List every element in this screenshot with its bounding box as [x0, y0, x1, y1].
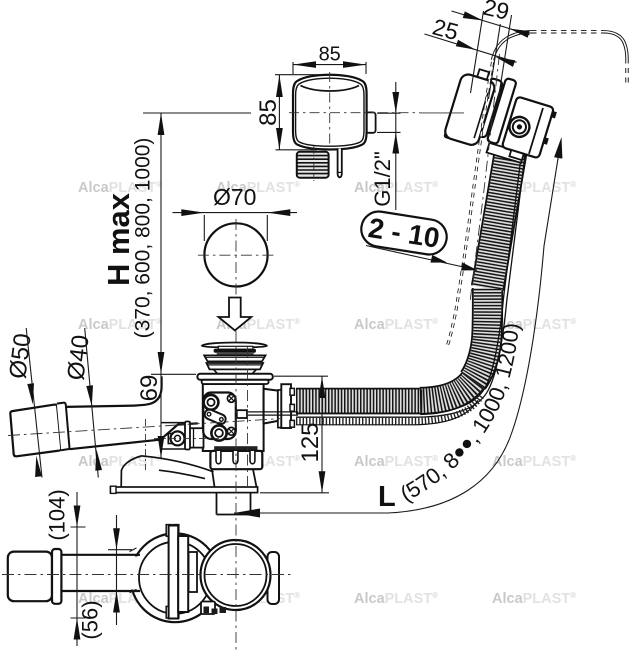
svg-text:AlcaPLAST®: AlcaPLAST® [492, 454, 576, 470]
svg-text:Ø40: Ø40 [62, 333, 94, 381]
svg-text:AlcaPLAST®: AlcaPLAST® [354, 317, 438, 333]
svg-text:(56): (56) [78, 600, 103, 639]
svg-text:L: L [378, 481, 396, 513]
svg-text:85: 85 [255, 99, 282, 126]
svg-text:125: 125 [297, 422, 324, 462]
svg-text:AlcaPLAST®: AlcaPLAST® [492, 591, 576, 607]
svg-text:(104): (104) [45, 489, 70, 540]
svg-text:85: 85 [319, 44, 341, 66]
svg-text:G1/2": G1/2" [370, 151, 395, 207]
svg-text:Ø50: Ø50 [4, 332, 36, 380]
svg-text:AlcaPLAST®: AlcaPLAST® [354, 591, 438, 607]
svg-text:69: 69 [136, 375, 163, 402]
svg-text:(370, 600, 800, 1000): (370, 600, 800, 1000) [132, 138, 155, 339]
svg-text:Ø70: Ø70 [213, 184, 256, 210]
